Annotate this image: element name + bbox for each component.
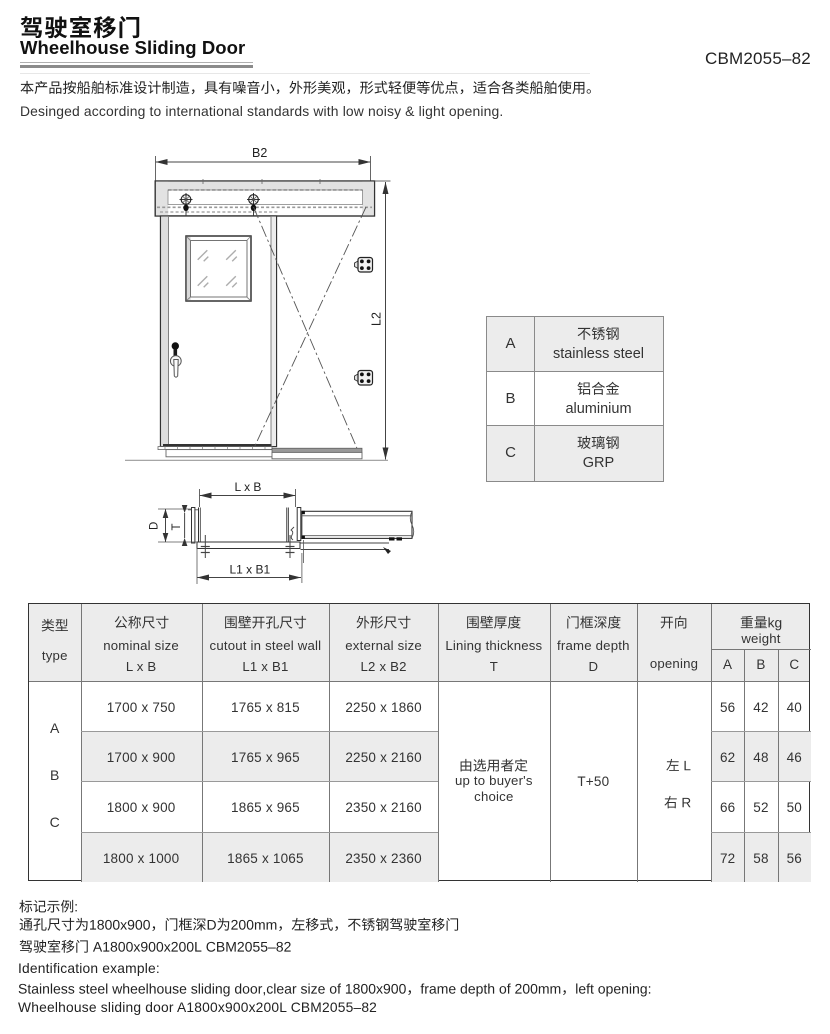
svg-text:B2: B2 [252, 146, 267, 160]
svg-text:L x B: L x B [235, 480, 262, 494]
svg-text:L2: L2 [370, 312, 384, 326]
svg-text:D: D [149, 522, 161, 530]
svg-text:L1 x B1: L1 x B1 [230, 563, 271, 577]
svg-text:T: T [171, 523, 183, 530]
